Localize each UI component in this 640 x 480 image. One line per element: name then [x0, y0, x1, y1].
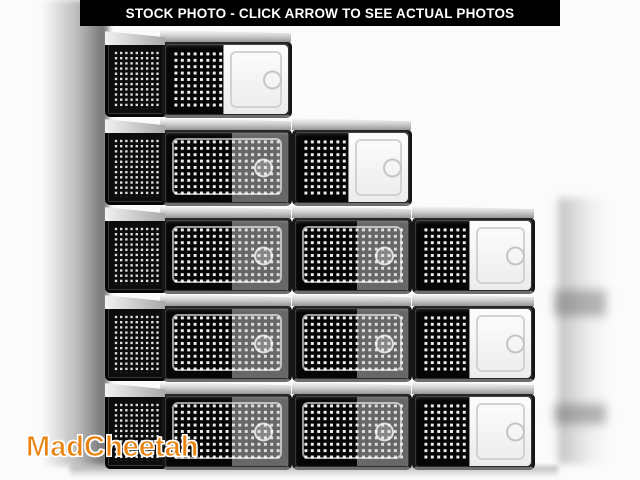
- shoe-box-left-row1: [105, 30, 292, 118]
- box-door: [469, 397, 531, 466]
- box-door: [469, 309, 531, 378]
- box-front: [412, 217, 535, 294]
- door-finger-hole: [506, 246, 525, 265]
- box-door: [223, 45, 288, 114]
- box-side-panel: [105, 217, 168, 293]
- door-finger-hole: [254, 422, 273, 441]
- box-top-face-side: [105, 206, 165, 221]
- box-top-face: [412, 382, 534, 394]
- side-perforation-grid: [112, 225, 161, 285]
- box-top-face: [160, 294, 291, 306]
- box-top-face-side: [105, 382, 165, 397]
- box-side-panel: [105, 129, 168, 205]
- box-top-face: [292, 206, 411, 218]
- door-finger-hole: [375, 246, 394, 265]
- box-top-face-side: [105, 294, 165, 309]
- box-top-face: [412, 294, 534, 306]
- shoe-box-middle-row5: [292, 382, 412, 470]
- box-top-face: [160, 206, 291, 218]
- box-front: [412, 305, 535, 382]
- box-top-face: [412, 206, 534, 218]
- door-finger-hole: [263, 70, 282, 89]
- listing-photo[interactable]: STOCK PHOTO - CLICK ARROW TO SEE ACTUAL …: [0, 0, 640, 480]
- stock-photo-banner: STOCK PHOTO - CLICK ARROW TO SEE ACTUAL …: [80, 0, 560, 26]
- shoe-box-left-row4: [105, 294, 292, 382]
- box-top-face: [292, 382, 411, 394]
- box-front: [292, 393, 412, 470]
- box-front: [162, 217, 292, 294]
- box-side-panel: [105, 305, 168, 381]
- door-finger-hole: [375, 334, 394, 353]
- box-side-panel: [105, 41, 168, 117]
- shoe-box-middle-row2: [292, 118, 412, 206]
- box-top-face: [292, 294, 411, 306]
- door-finger-hole: [506, 422, 525, 441]
- box-front: [162, 41, 292, 118]
- side-perforation-grid: [112, 313, 161, 373]
- shoe-box-right-row5: [412, 382, 535, 470]
- box-front: [162, 129, 292, 206]
- box-front: [162, 305, 292, 382]
- box-front: [292, 305, 412, 382]
- door-finger-hole: [506, 334, 525, 353]
- shoe-box-left-row3: [105, 206, 292, 294]
- watermark-text: MadCheetah: [26, 431, 198, 463]
- shoe-box-left-row2: [105, 118, 292, 206]
- box-top-face-side: [105, 30, 165, 45]
- door-finger-hole: [254, 334, 273, 353]
- box-top-face-side: [105, 118, 165, 133]
- box-top-face: [160, 382, 291, 394]
- shoe-box-right-row3: [412, 206, 535, 294]
- door-finger-hole: [254, 246, 273, 265]
- box-door: [348, 133, 408, 202]
- shoe-box-stack: [0, 0, 640, 480]
- box-door: [469, 221, 531, 290]
- door-finger-hole: [383, 158, 402, 177]
- box-top-face: [160, 118, 291, 130]
- banner-text: STOCK PHOTO - CLICK ARROW TO SEE ACTUAL …: [126, 6, 515, 21]
- door-finger-hole: [375, 422, 394, 441]
- shoe-box-middle-row4: [292, 294, 412, 382]
- shoe-box-middle-row3: [292, 206, 412, 294]
- box-top-face: [160, 30, 291, 42]
- box-front: [292, 129, 412, 206]
- watermark: MadCheetah: [26, 433, 198, 462]
- box-front: [292, 217, 412, 294]
- side-perforation-grid: [112, 49, 161, 109]
- shoe-box-right-row4: [412, 294, 535, 382]
- box-front: [412, 393, 535, 470]
- door-finger-hole: [254, 158, 273, 177]
- box-top-face: [292, 118, 411, 130]
- side-perforation-grid: [112, 137, 161, 197]
